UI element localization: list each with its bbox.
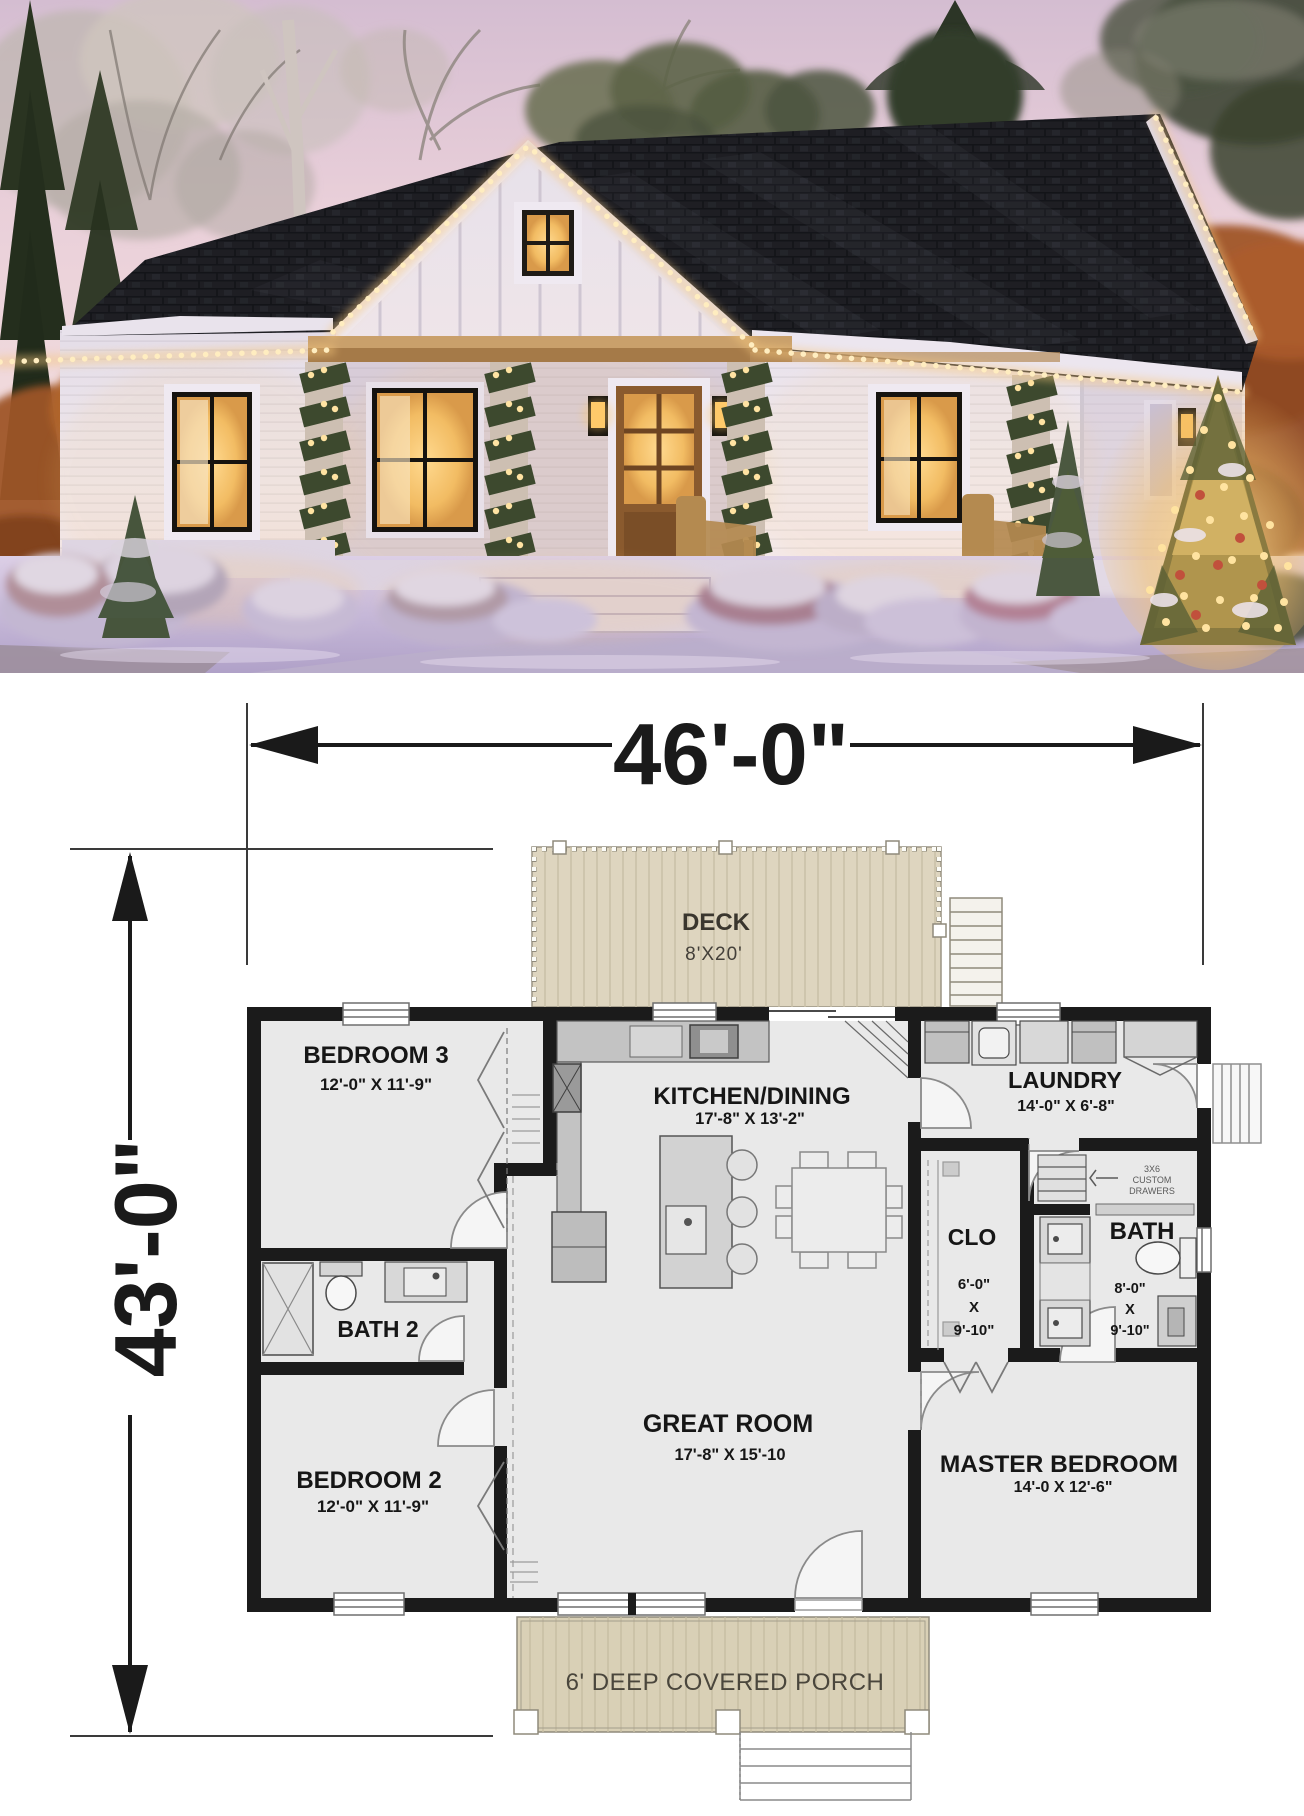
svg-text:CLO: CLO [948,1224,997,1250]
svg-text:6' DEEP COVERED PORCH: 6' DEEP COVERED PORCH [566,1669,885,1696]
svg-text:LAUNDRY: LAUNDRY [1008,1067,1122,1093]
svg-text:BEDROOM 2: BEDROOM 2 [296,1467,441,1494]
svg-text:9'-10": 9'-10" [1110,1323,1149,1339]
svg-text:DRAWERS: DRAWERS [1129,1186,1175,1196]
svg-text:43'-0": 43'-0" [96,1139,195,1378]
svg-text:BATH: BATH [1110,1218,1175,1245]
svg-text:46'-0": 46'-0" [613,706,849,803]
svg-text:DECK: DECK [682,909,751,936]
svg-text:BATH 2: BATH 2 [337,1316,418,1342]
svg-text:8'X20': 8'X20' [685,944,743,965]
svg-text:KITCHEN/DINING: KITCHEN/DINING [653,1083,850,1110]
svg-text:9'-10": 9'-10" [954,1322,995,1339]
svg-text:17'-8" X 15'-10: 17'-8" X 15'-10 [674,1446,785,1464]
svg-text:12'-0" X 11'-9": 12'-0" X 11'-9" [320,1075,432,1094]
svg-text:14'-0 X 12'-6": 14'-0 X 12'-6" [1014,1479,1113,1496]
svg-text:14'-0" X 6'-8": 14'-0" X 6'-8" [1017,1098,1115,1115]
svg-text:GREAT ROOM: GREAT ROOM [643,1410,813,1438]
svg-text:6'-0": 6'-0" [958,1276,990,1293]
svg-text:BEDROOM 3: BEDROOM 3 [303,1042,448,1069]
svg-text:MASTER BEDROOM: MASTER BEDROOM [940,1451,1178,1478]
svg-text:3X6: 3X6 [1144,1164,1160,1174]
svg-text:17'-8" X 13'-2": 17'-8" X 13'-2" [695,1110,805,1128]
svg-text:X: X [1125,1302,1135,1318]
svg-text:X: X [969,1299,979,1316]
svg-text:8'-0": 8'-0" [1114,1281,1145,1297]
svg-text:12'-0" X 11'-9": 12'-0" X 11'-9" [317,1497,429,1516]
svg-text:CUSTOM: CUSTOM [1133,1175,1172,1185]
